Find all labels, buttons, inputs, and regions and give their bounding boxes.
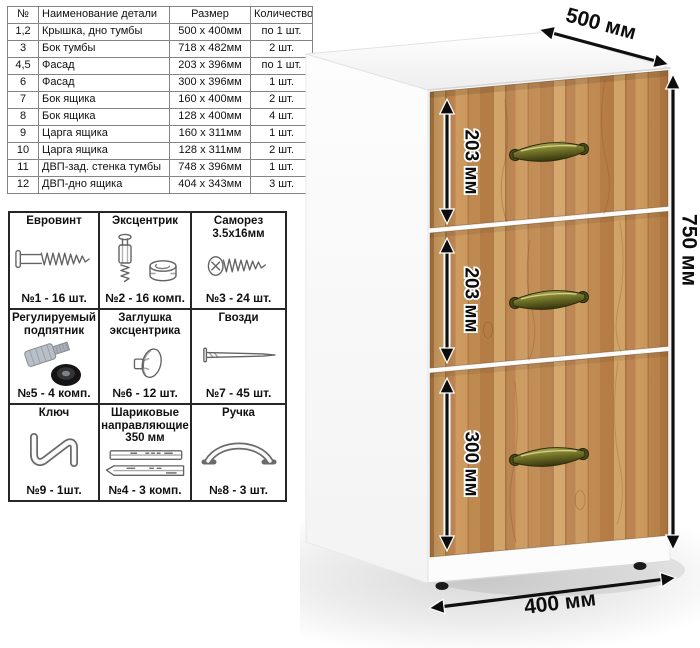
table-row: 6 Фасад 300 х 396мм 1 шт. <box>8 75 313 92</box>
hex-key-icon <box>22 420 86 483</box>
hardware-item: Гвозди №7 - 45 шт. <box>192 310 285 405</box>
nail-icon <box>199 325 279 386</box>
cam-cover-icon <box>121 337 169 386</box>
ball-bearing-slides-icon <box>101 445 189 483</box>
part-size: 128 х 311мм <box>170 143 251 160</box>
table-row: 4,5 Фасад 203 х 396мм по 1 шт. <box>8 58 313 75</box>
hardware-count: №5 - 4 комп. <box>17 386 90 400</box>
header-part-name: Наименование детали <box>39 7 170 24</box>
hardware-title: Ключ <box>39 407 69 420</box>
hardware-grid: Евровинт №1 - 16 шт. Эксцентрик <box>8 211 287 502</box>
cabinet-foot <box>634 562 647 570</box>
table-row: 7 Бок ящика 160 х 400мм 2 шт. <box>8 92 313 109</box>
parts-table: № Наименование детали Размер Количество … <box>7 6 313 194</box>
cabinet-foot <box>436 582 449 590</box>
dimension-label-drawer-2: 203 мм <box>461 267 482 332</box>
assembly-sheet: № Наименование детали Размер Количество … <box>0 0 700 648</box>
part-size: 500 х 400мм <box>170 24 251 41</box>
hardware-count: №4 - 3 комп. <box>108 483 181 497</box>
part-size: 203 х 396мм <box>170 58 251 75</box>
hardware-title: Ручка <box>222 407 255 420</box>
part-size: 300 х 396мм <box>170 75 251 92</box>
part-name: Бок ящика <box>39 92 170 109</box>
part-name: ДВП-дно ящика <box>39 177 170 194</box>
hardware-item: Заглушка эксцентрика №6 - 12 шт. <box>100 310 192 405</box>
hardware-count: №8 - 3 шт. <box>209 483 268 497</box>
part-number: 11 <box>8 160 39 177</box>
cabinet-render: 500 мм 750 мм 400 мм 203 мм 203 мм 300 м… <box>300 0 700 648</box>
table-header-row: № Наименование детали Размер Количество <box>8 7 313 24</box>
part-number: 8 <box>8 109 39 126</box>
table-row: 1,2 Крышка, дно тумбы 500 х 400мм по 1 ш… <box>8 24 313 41</box>
hardware-item: Эксцентрик №2 - 16 комп. <box>100 213 192 310</box>
part-name: Царга ящика <box>39 143 170 160</box>
hardware-count: №1 - 16 шт. <box>21 291 87 305</box>
part-number: 7 <box>8 92 39 109</box>
cabinet-side-panel <box>306 54 428 583</box>
header-size: Размер <box>170 7 251 24</box>
part-number: 4,5 <box>8 58 39 75</box>
hardware-count: №7 - 45 шт. <box>206 386 272 400</box>
part-name: Бок тумбы <box>39 41 170 58</box>
adjustable-foot-icon <box>23 337 85 386</box>
table-row: 10 Царга ящика 128 х 311мм 2 шт. <box>8 143 313 160</box>
hardware-item: Саморез 3.5х16мм №3 - 24 шт. <box>192 213 285 310</box>
hardware-count: №6 - 12 шт. <box>112 386 178 400</box>
hardware-title: Саморез 3.5х16мм <box>193 215 284 240</box>
hardware-item: Ключ №9 - 1шт. <box>10 405 100 500</box>
part-name: ДВП-зад. стенка тумбы <box>39 160 170 177</box>
hardware-title: Гвозди <box>218 312 258 325</box>
dimension-label-drawer-1: 203 мм <box>461 129 482 194</box>
header-number: № <box>8 7 39 24</box>
hardware-item: Ручка №8 - 3 шт. <box>192 405 285 500</box>
dimension-label-drawer-3: 300 мм <box>461 431 482 496</box>
hardware-title: Регулируемый подпятник <box>11 312 97 337</box>
part-number: 10 <box>8 143 39 160</box>
hardware-item: Шариковые направляющие 350 мм №4 - 3 ком… <box>100 405 192 500</box>
dimension-label-height: 750 мм <box>678 214 700 286</box>
part-number: 9 <box>8 126 39 143</box>
part-size: 160 х 311мм <box>170 126 251 143</box>
hardware-title: Эксцентрик <box>112 215 178 228</box>
table-row: 11 ДВП-зад. стенка тумбы 748 х 396мм 1 ш… <box>8 160 313 177</box>
hardware-item: Регулируемый подпятник №5 - 4 комп. <box>10 310 100 405</box>
hardware-title: Заглушка эксцентрика <box>101 312 189 337</box>
part-name: Крышка, дно тумбы <box>39 24 170 41</box>
table-row: 8 Бок ящика 128 х 400мм 4 шт. <box>8 109 313 126</box>
part-number: 6 <box>8 75 39 92</box>
hardware-count: №2 - 16 комп. <box>105 291 185 305</box>
euro-screw-icon <box>13 228 95 291</box>
part-size: 128 х 400мм <box>170 109 251 126</box>
part-name: Фасад <box>39 75 170 92</box>
part-name: Царга ящика <box>39 126 170 143</box>
part-size: 748 х 396мм <box>170 160 251 177</box>
handle-icon <box>200 420 278 483</box>
table-row: 3 Бок тумбы 718 х 482мм 2 шт. <box>8 41 313 58</box>
table-row: 12 ДВП-дно ящика 404 х 343мм 3 шт. <box>8 177 313 194</box>
part-size: 160 х 400мм <box>170 92 251 109</box>
hardware-title: Шариковые направляющие 350 мм <box>101 407 189 445</box>
part-size: 404 х 343мм <box>170 177 251 194</box>
part-number: 3 <box>8 41 39 58</box>
hardware-count: №3 - 24 шт. <box>206 291 272 305</box>
hardware-item: Евровинт №1 - 16 шт. <box>10 213 100 310</box>
part-name: Фасад <box>39 58 170 75</box>
part-size: 718 х 482мм <box>170 41 251 58</box>
part-number: 12 <box>8 177 39 194</box>
eccentric-cam-icon <box>107 228 183 291</box>
hardware-count: №9 - 1шт. <box>26 483 82 497</box>
table-row: 9 Царга ящика 160 х 311мм 1 шт. <box>8 126 313 143</box>
hardware-title: Евровинт <box>26 215 82 228</box>
part-name: Бок ящика <box>39 109 170 126</box>
part-number: 1,2 <box>8 24 39 41</box>
self-tapping-screw-icon <box>206 240 272 291</box>
